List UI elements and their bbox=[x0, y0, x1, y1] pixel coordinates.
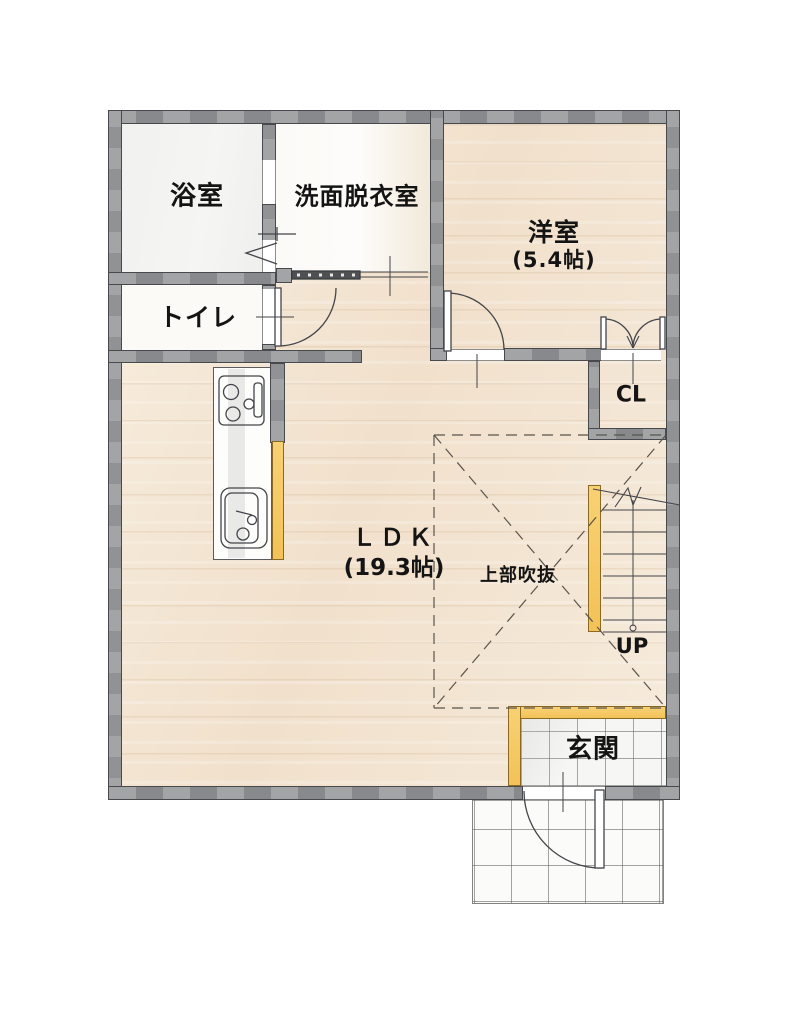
wall-washroom-stub bbox=[276, 268, 292, 283]
wall-closet-bottom bbox=[588, 428, 666, 440]
wall-bath-wash-lower bbox=[262, 204, 276, 241]
wall-hall-bedroom bbox=[430, 110, 444, 350]
wall-outer-right bbox=[666, 110, 680, 800]
wall-toilet-bottom bbox=[108, 350, 362, 363]
wall-outer-left bbox=[108, 110, 122, 800]
porch-tiles bbox=[473, 800, 663, 903]
bath-window-sill bbox=[262, 160, 276, 205]
closet-label: CL bbox=[616, 383, 646, 408]
wall-kitchen-stub bbox=[270, 363, 285, 443]
ldk-size: (19.3帖) bbox=[344, 548, 445, 582]
bath-label: 浴室 bbox=[170, 176, 224, 213]
bath-door-sill bbox=[262, 240, 276, 273]
wall-closet-left bbox=[588, 361, 600, 431]
washroom-label: 洗面脱衣室 bbox=[295, 177, 420, 212]
entrance-door-sill bbox=[523, 786, 605, 800]
toilet-door-sill bbox=[262, 289, 276, 345]
void-label: 上部吹抜 bbox=[480, 561, 556, 587]
closet-door-sill bbox=[601, 349, 661, 361]
entrance-label: 玄関 bbox=[566, 729, 620, 766]
entrance-step-left bbox=[508, 706, 521, 786]
bedroom-door-sill bbox=[447, 349, 504, 361]
wall-bedroom-bottom-stub bbox=[430, 348, 447, 361]
floorplan-canvas: 浴室 洗面脱衣室 トイレ 洋室 (5.4帖) CL ＬＤＫ (19.3帖) 上部… bbox=[0, 0, 799, 1024]
western-room-size: (5.4帖) bbox=[512, 244, 595, 274]
wall-bath-bottom bbox=[108, 272, 276, 285]
wall-bath-wash-upper bbox=[262, 124, 276, 161]
kitchen-counter-edge bbox=[272, 441, 284, 560]
wall-outer-bottom-right bbox=[605, 786, 680, 800]
stairs-up-label: UP bbox=[616, 634, 648, 658]
wall-outer-bottom-left bbox=[108, 786, 523, 800]
kitchen-counter-shade bbox=[228, 369, 245, 558]
entrance-step-top bbox=[508, 706, 666, 719]
stair-handrail bbox=[588, 485, 601, 632]
toilet-label: トイレ bbox=[159, 298, 237, 334]
wall-bedroom-bottom bbox=[504, 348, 602, 361]
wall-outer-top bbox=[108, 110, 680, 124]
